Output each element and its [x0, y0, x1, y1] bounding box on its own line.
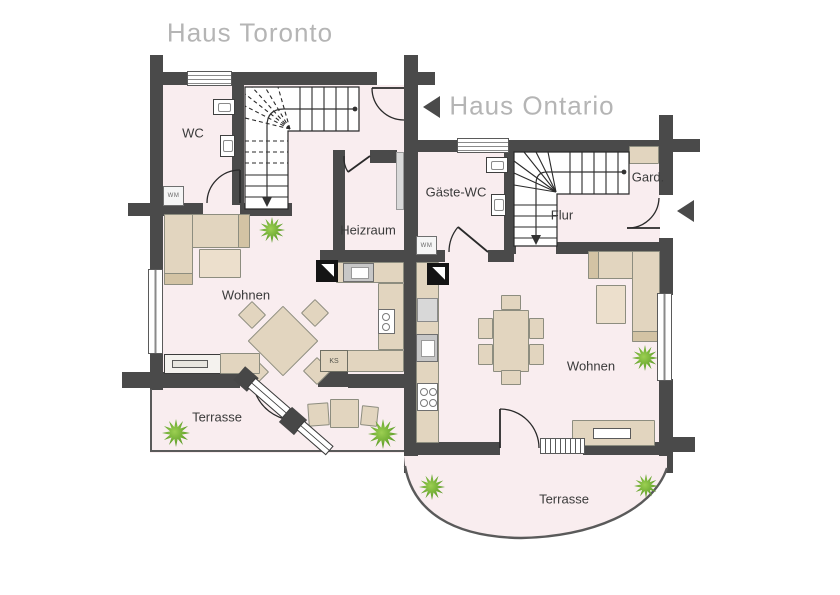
window: [657, 293, 672, 381]
wall: [504, 242, 516, 254]
kitchen-sink: [343, 263, 374, 282]
terrace-chair: [360, 405, 379, 427]
coffee-table: [596, 285, 626, 324]
wall: [404, 442, 500, 455]
chair: [501, 370, 521, 385]
wall: [659, 379, 673, 473]
terrace-chair: [307, 402, 330, 426]
chimney-icon: [316, 260, 338, 282]
wall: [150, 372, 240, 388]
terrace-table: [330, 399, 359, 428]
entrance-arrow-icon: [677, 200, 694, 222]
fridge-label: KS: [329, 358, 338, 365]
sofa: [632, 251, 660, 342]
stove: [417, 383, 438, 411]
tv: [172, 360, 208, 368]
window: [148, 269, 163, 354]
wall: [370, 150, 397, 163]
french-window: [540, 438, 585, 454]
sofa-armrest: [588, 251, 599, 279]
chair: [529, 318, 544, 339]
lowboard-end: [220, 353, 260, 374]
wall: [231, 72, 377, 85]
title-haus-toronto: Haus Toronto: [167, 18, 333, 49]
fridge: KS: [320, 350, 348, 372]
terrace-table: [468, 473, 496, 499]
wall: [673, 139, 700, 152]
plant-icon: [419, 474, 445, 500]
room-label-terrasse-toronto: Terrasse: [192, 410, 242, 425]
wall: [150, 55, 163, 270]
wall: [659, 238, 673, 295]
wall: [672, 437, 695, 452]
wall: [150, 72, 188, 85]
stove: [378, 309, 395, 334]
washing-machine: WM: [416, 236, 437, 255]
sofa-armrest: [238, 214, 250, 248]
toilet: [220, 135, 235, 157]
kitchen-appliance: [417, 298, 438, 322]
wm-label: WM: [168, 193, 180, 199]
room-label-flur: Flur: [551, 208, 573, 223]
chair: [478, 344, 493, 365]
terrace-chair: [497, 477, 515, 496]
entrance-arrow-icon: [423, 96, 440, 118]
chair: [478, 318, 493, 339]
kitchen-sink: [416, 334, 438, 362]
room-label-wohnen-ontario: Wohnen: [567, 359, 615, 374]
wall: [128, 203, 150, 216]
sideboard-detail: [593, 428, 631, 439]
wall: [404, 140, 458, 152]
wall: [333, 150, 345, 262]
chair: [529, 344, 544, 365]
chair: [501, 295, 521, 310]
room-label-heizraum: Heizraum: [340, 223, 396, 238]
wall: [404, 72, 435, 85]
room-label-gaeste-wc: Gäste-WC: [426, 185, 487, 200]
sofa-armrest: [632, 331, 660, 342]
room-label-wohnen-toronto: Wohnen: [222, 288, 270, 303]
floorplan-canvas: KS WM WM: [0, 0, 840, 595]
glass-sidelight: [396, 152, 404, 210]
terrace-chair: [450, 477, 468, 496]
washing-machine: WM: [163, 186, 184, 206]
wm-label: WM: [421, 243, 433, 249]
title-haus-ontario: Haus Ontario: [449, 91, 614, 122]
window: [457, 138, 509, 153]
room-label-garderobe: Gard.: [632, 170, 665, 185]
plant-icon: [634, 474, 658, 498]
wardrobe: [629, 146, 659, 164]
wall: [348, 374, 404, 388]
coffee-table: [199, 249, 241, 278]
washbasin: [486, 157, 508, 173]
sofa-armrest: [164, 273, 193, 285]
toilet: [491, 194, 506, 216]
room-label-terrasse-ontario: Terrasse: [539, 492, 589, 507]
chimney-icon: [427, 263, 449, 285]
room-label-wc: WC: [182, 126, 204, 141]
washbasin: [213, 99, 235, 115]
window: [187, 71, 232, 86]
dining-table: [493, 310, 529, 372]
